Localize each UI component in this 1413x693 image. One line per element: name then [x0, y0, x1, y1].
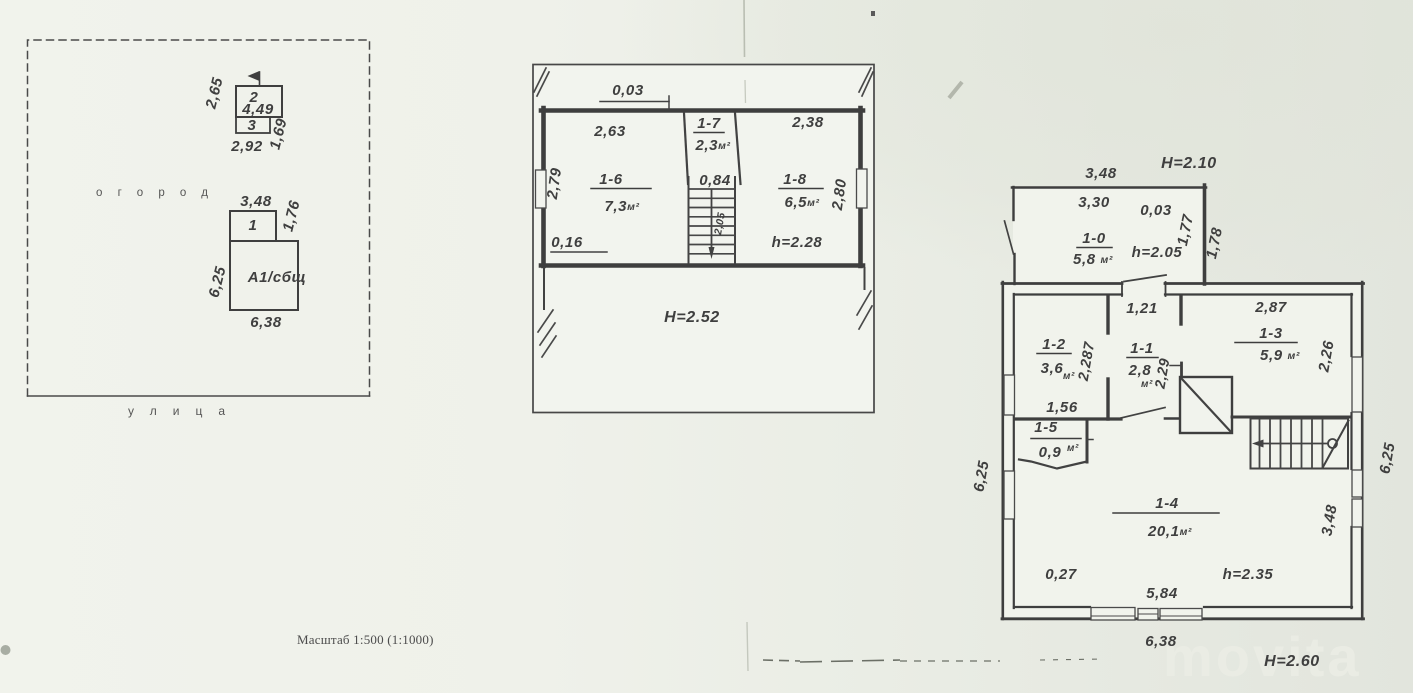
svg-text:0,27: 0,27 — [1045, 566, 1077, 583]
svg-text:1-0: 1-0 — [1082, 230, 1106, 247]
svg-text:1-8: 1-8 — [783, 171, 807, 188]
svg-text:3,30: 3,30 — [1078, 194, 1110, 211]
svg-text:Масштаб 1:500 (1:1000): Масштаб 1:500 (1:1000) — [297, 632, 434, 647]
svg-text:4,49: 4,49 — [241, 101, 274, 118]
svg-text:2,63: 2,63 — [593, 123, 626, 140]
svg-text:3: 3 — [248, 117, 257, 134]
svg-text:h=2.05: h=2.05 — [1132, 244, 1183, 261]
svg-text:1-1: 1-1 — [1130, 340, 1153, 357]
svg-text:2,8: 2,8 — [1128, 362, 1152, 379]
svg-text:2,38: 2,38 — [791, 114, 824, 131]
svg-text:2,87: 2,87 — [1254, 299, 1287, 316]
svg-text:1,21: 1,21 — [1126, 300, 1158, 317]
svg-text:м²: м² — [1067, 443, 1079, 454]
svg-text:5,84: 5,84 — [1146, 585, 1178, 602]
svg-text:0,84: 0,84 — [699, 172, 731, 189]
svg-text:h=2.28: h=2.28 — [772, 234, 823, 251]
svg-text:6,38: 6,38 — [1145, 633, 1177, 650]
svg-text:6,38: 6,38 — [250, 314, 282, 331]
svg-text:улица: улица — [128, 404, 241, 418]
svg-text:0,03: 0,03 — [612, 82, 644, 99]
svg-text:1-2: 1-2 — [1042, 336, 1066, 353]
svg-text:7,3м²: 7,3м² — [604, 198, 639, 215]
svg-text:1-5: 1-5 — [1034, 419, 1058, 436]
svg-text:6,5м²: 6,5м² — [784, 194, 819, 211]
svg-text:h=2.35: h=2.35 — [1223, 566, 1274, 583]
svg-text:3,48: 3,48 — [1085, 165, 1117, 182]
svg-text:Н=2.52: Н=2.52 — [664, 309, 720, 326]
svg-text:Н=2.60: Н=2.60 — [1264, 653, 1320, 670]
svg-text:1,56: 1,56 — [1046, 399, 1078, 416]
svg-text:5,9 м²: 5,9 м² — [1260, 347, 1300, 364]
svg-text:0,03: 0,03 — [1140, 202, 1172, 219]
svg-text:2,92: 2,92 — [230, 138, 263, 155]
svg-text:м²: м² — [1063, 371, 1075, 382]
svg-text:1-6: 1-6 — [599, 171, 623, 188]
svg-text:2,3м²: 2,3м² — [694, 137, 730, 154]
svg-text:3,6: 3,6 — [1041, 360, 1064, 377]
svg-text:0,16: 0,16 — [551, 234, 583, 251]
svg-text:1-4: 1-4 — [1155, 495, 1179, 512]
svg-text:0,9: 0,9 — [1039, 444, 1062, 461]
svg-text:5,8 м²: 5,8 м² — [1073, 251, 1113, 268]
svg-text:1-7: 1-7 — [697, 115, 721, 132]
svg-text:20,1м²: 20,1м² — [1147, 523, 1192, 540]
svg-text:огород: огород — [96, 187, 223, 199]
svg-text:3,48: 3,48 — [240, 193, 272, 210]
svg-text:1: 1 — [249, 217, 258, 234]
svg-text:1-3: 1-3 — [1259, 325, 1283, 342]
svg-text:Н=2.10: Н=2.10 — [1161, 155, 1217, 172]
svg-text:А1/сбщ: А1/сбщ — [247, 269, 307, 286]
svg-text:м²: м² — [1141, 379, 1153, 390]
svg-text:movita: movita — [1163, 625, 1362, 688]
